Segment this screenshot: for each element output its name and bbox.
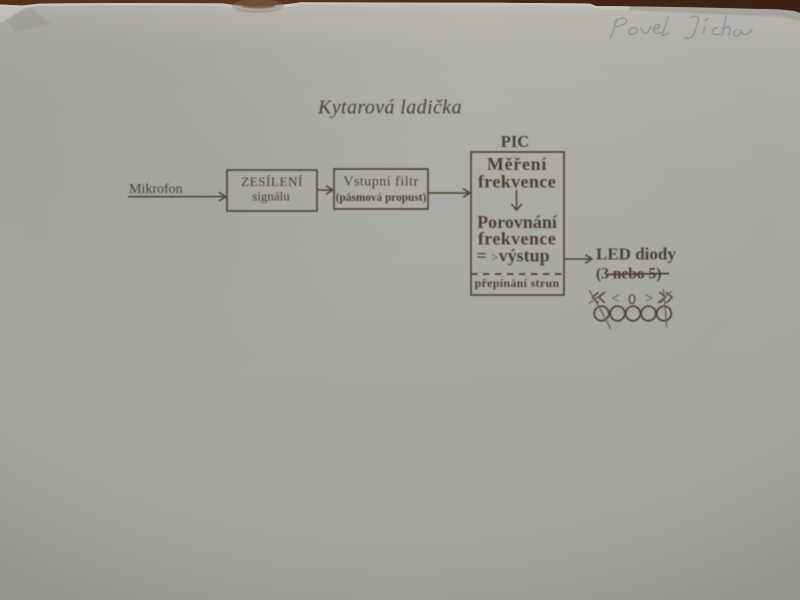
svg-text:(pásmová propust): (pásmová propust) — [336, 192, 427, 204]
svg-text:LED diody: LED diody — [596, 245, 676, 264]
svg-text:ZESÍLENÍ: ZESÍLENÍ — [241, 174, 303, 189]
svg-text:signálu: signálu — [252, 189, 290, 204]
svg-text:frekvence: frekvence — [478, 172, 556, 192]
svg-text:Kytarová ladička: Kytarová ladička — [317, 97, 462, 119]
svg-text:<: < — [611, 291, 619, 307]
svg-text:>: > — [645, 291, 653, 307]
svg-text:PIC: PIC — [501, 132, 529, 151]
svg-text:přepínání strun: přepínání strun — [475, 276, 560, 290]
svg-text:Vstupní filtr: Vstupní filtr — [343, 175, 418, 190]
svg-text:Mikrofon: Mikrofon — [129, 182, 183, 197]
svg-text:= >výstup: = >výstup — [476, 246, 549, 266]
